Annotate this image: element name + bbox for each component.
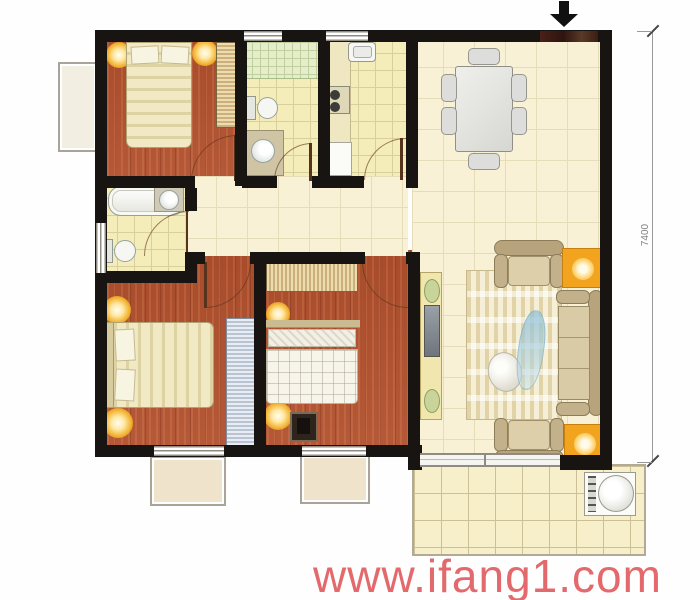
shower-area-icon — [244, 42, 318, 79]
dining-table — [455, 66, 513, 152]
wall-lamp-icon — [103, 296, 131, 324]
wall-lamp-icon — [103, 408, 133, 438]
wall-kitchen-south — [312, 176, 364, 188]
tv-cabinet — [420, 272, 442, 420]
window-bathroom-1 — [244, 31, 282, 41]
pillow-icon — [161, 45, 190, 64]
kitchen-sink-icon — [348, 42, 376, 62]
floorplan-canvas: 7400 www.ifang1.com — [0, 0, 700, 600]
toilet-tank — [246, 96, 256, 120]
entry-arrow-icon — [559, 1, 569, 14]
armchair-icon — [494, 240, 564, 290]
dimension-extension — [637, 31, 652, 32]
burner — [330, 102, 340, 112]
bedroom-2-bed — [104, 322, 214, 408]
rug — [466, 270, 562, 420]
watermark-text: www.ifang1.com — [313, 549, 662, 600]
pillow-icon — [268, 329, 356, 347]
sink-basin — [353, 46, 372, 58]
wall-bed1-south — [95, 176, 195, 188]
armchair-seat — [508, 256, 550, 286]
dining-chair-icon — [468, 48, 500, 65]
wall-hall-south — [185, 252, 205, 264]
balcony-sliding-door — [420, 453, 560, 467]
bed-quilt — [266, 349, 358, 404]
wall-south — [95, 445, 422, 457]
bedroom-3-bed — [264, 320, 360, 406]
bedroom-1-bed — [126, 42, 192, 148]
sofa-arm — [556, 290, 590, 304]
window-kitchen — [326, 31, 368, 41]
entry-arrow-icon — [550, 14, 578, 27]
bay-window — [58, 62, 98, 152]
dining-chair-icon — [511, 107, 527, 135]
tv-screen — [297, 418, 310, 434]
dimension-tick — [647, 455, 660, 468]
wardrobe-icon — [226, 318, 256, 452]
wall-bath2-east — [185, 188, 197, 211]
washbasin-icon — [251, 139, 275, 163]
wall-lamp-icon — [192, 40, 218, 66]
tv-icon — [290, 412, 318, 442]
toilet-bowl — [114, 240, 136, 262]
lamp-glow — [572, 258, 594, 280]
armchair-arm — [550, 418, 564, 452]
wall-living-south — [560, 455, 612, 470]
side-table-lamp-icon — [562, 248, 602, 288]
wall-bath1-kitchen — [318, 30, 330, 186]
dimension-label: 7400 — [640, 220, 654, 250]
washer-door — [598, 475, 634, 512]
hallway-floor — [185, 176, 408, 256]
sofa-seat — [558, 306, 590, 400]
pillow-icon — [114, 368, 136, 401]
window-bedroom-3 — [302, 446, 366, 456]
dining-chair-icon — [511, 74, 527, 102]
tv-icon — [424, 305, 440, 357]
washer-controls — [588, 476, 596, 512]
wall-hall-south — [250, 252, 365, 264]
sofa-arm — [556, 402, 590, 416]
dining-chair-icon — [441, 74, 457, 102]
window-bedroom-2 — [154, 446, 224, 456]
armchair-arm — [494, 254, 508, 288]
vanity-counter — [154, 186, 184, 212]
plant-icon — [424, 389, 440, 413]
dimension-extension — [637, 462, 652, 463]
lamp-glow — [574, 433, 596, 455]
dining-chair-icon — [468, 153, 500, 170]
burner — [330, 90, 340, 100]
sofa-icon — [556, 290, 604, 416]
bed-headboard — [264, 320, 360, 328]
wall-lamp-icon — [264, 402, 292, 430]
bay-window — [300, 454, 370, 504]
armchair-arm — [494, 418, 508, 452]
washing-machine-icon — [584, 472, 636, 516]
wall-living-west — [408, 252, 420, 445]
plant-icon — [424, 279, 440, 303]
pillow-icon — [131, 45, 160, 64]
toilet-icon — [246, 94, 280, 124]
wall-bath1-south — [242, 176, 277, 188]
washbasin-icon — [159, 190, 179, 210]
toilet-bowl — [257, 97, 278, 119]
entry-door-mat — [540, 31, 598, 42]
pillow-icon — [114, 328, 136, 361]
wall-bed1-bath1 — [235, 30, 247, 186]
bay-window — [150, 456, 226, 506]
toilet-icon — [104, 238, 138, 264]
wall-bath2-south — [95, 271, 197, 283]
armchair-seat — [508, 420, 550, 450]
wall-kitchen-dining — [406, 30, 418, 188]
window-bathroom-2 — [96, 223, 106, 273]
wall-bed2-bed3 — [254, 256, 266, 445]
wall-east — [600, 30, 612, 470]
dining-chair-icon — [441, 107, 457, 135]
